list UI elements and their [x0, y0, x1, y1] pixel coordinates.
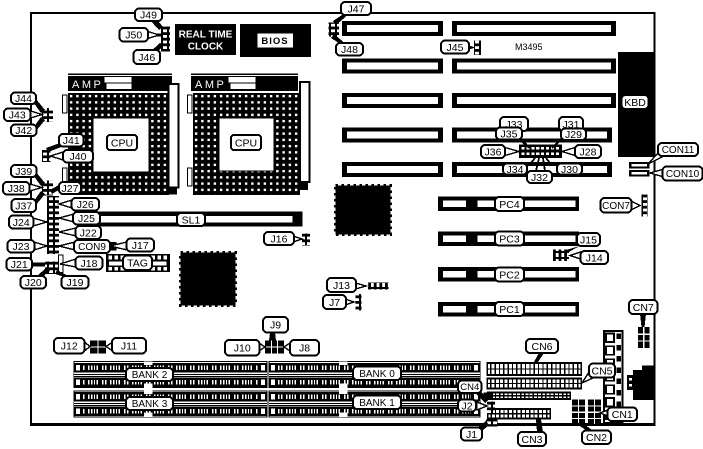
svg-text:J13: J13 — [333, 280, 350, 292]
svg-text:CN7: CN7 — [633, 302, 654, 314]
svg-text:CLOCK: CLOCK — [188, 42, 224, 53]
svg-text:J44: J44 — [15, 93, 32, 105]
svg-text:J32: J32 — [531, 172, 548, 184]
svg-text:M3495: M3495 — [515, 42, 543, 52]
svg-text:CON10: CON10 — [666, 169, 700, 180]
svg-text:PC3: PC3 — [499, 233, 520, 245]
svg-text:CN6: CN6 — [531, 341, 552, 353]
svg-text:J20: J20 — [25, 277, 42, 289]
svg-text:J27: J27 — [62, 183, 79, 195]
svg-text:CON7: CON7 — [602, 201, 630, 212]
svg-text:PC4: PC4 — [499, 199, 520, 211]
svg-text:CN5: CN5 — [591, 365, 612, 377]
svg-text:J46: J46 — [138, 52, 155, 64]
svg-text:J30: J30 — [561, 164, 578, 176]
svg-text:BANK 2: BANK 2 — [132, 370, 168, 381]
svg-text:CN2: CN2 — [586, 432, 607, 444]
svg-text:J49: J49 — [140, 10, 157, 22]
svg-text:J29: J29 — [565, 129, 582, 141]
svg-text:CPU: CPU — [235, 137, 257, 149]
svg-text:J26: J26 — [77, 199, 94, 211]
svg-text:J1: J1 — [466, 429, 477, 441]
svg-text:J18: J18 — [81, 258, 98, 270]
svg-text:TAG: TAG — [127, 258, 148, 270]
svg-text:J15: J15 — [580, 234, 597, 246]
svg-text:J14: J14 — [586, 252, 603, 264]
svg-text:BANK 0: BANK 0 — [359, 369, 395, 380]
svg-text:REAL TIME: REAL TIME — [179, 30, 233, 41]
svg-text:J50: J50 — [125, 30, 142, 42]
svg-text:J9: J9 — [270, 320, 281, 332]
svg-text:J36: J36 — [485, 146, 502, 158]
svg-text:J25: J25 — [78, 213, 95, 225]
svg-text:AMP: AMP — [195, 79, 226, 91]
svg-text:CPU: CPU — [111, 137, 133, 149]
svg-text:J48: J48 — [341, 44, 358, 56]
svg-text:J28: J28 — [580, 146, 597, 158]
svg-text:KBD: KBD — [624, 97, 646, 109]
svg-text:J37: J37 — [15, 200, 32, 212]
svg-text:J38: J38 — [8, 183, 25, 195]
svg-text:J17: J17 — [132, 240, 149, 252]
svg-text:J39: J39 — [15, 166, 32, 178]
svg-text:J35: J35 — [501, 128, 518, 140]
svg-text:J43: J43 — [9, 110, 26, 122]
svg-text:CN1: CN1 — [612, 409, 633, 421]
svg-text:J45: J45 — [447, 42, 464, 54]
svg-text:J23: J23 — [13, 241, 30, 253]
svg-text:J34: J34 — [507, 164, 524, 176]
svg-text:CN4: CN4 — [460, 382, 479, 393]
svg-text:J7: J7 — [329, 297, 340, 309]
svg-text:CON9: CON9 — [78, 242, 106, 253]
svg-text:J47: J47 — [348, 3, 365, 15]
svg-text:J2: J2 — [461, 400, 472, 412]
svg-text:CON11: CON11 — [662, 145, 695, 156]
svg-text:SL1: SL1 — [182, 214, 201, 226]
svg-text:J19: J19 — [67, 277, 84, 289]
svg-text:J24: J24 — [13, 217, 30, 229]
svg-text:J11: J11 — [121, 341, 137, 353]
svg-text:J21: J21 — [11, 259, 28, 271]
svg-text:BANK 1: BANK 1 — [359, 398, 395, 409]
svg-text:PC1: PC1 — [499, 304, 520, 316]
svg-text:J42: J42 — [15, 125, 32, 137]
svg-text:CN3: CN3 — [521, 434, 542, 446]
svg-text:J41: J41 — [63, 135, 80, 147]
svg-text:J10: J10 — [234, 343, 251, 355]
svg-text:J12: J12 — [61, 341, 78, 353]
svg-text:PC2: PC2 — [499, 269, 520, 281]
svg-text:BANK 3: BANK 3 — [132, 399, 168, 410]
svg-text:J16: J16 — [271, 233, 288, 245]
svg-text:J8: J8 — [299, 343, 310, 355]
svg-text:J40: J40 — [70, 151, 87, 163]
svg-text:AMP: AMP — [72, 79, 103, 91]
svg-text:BIOS: BIOS — [261, 36, 288, 47]
svg-text:J22: J22 — [80, 227, 97, 239]
